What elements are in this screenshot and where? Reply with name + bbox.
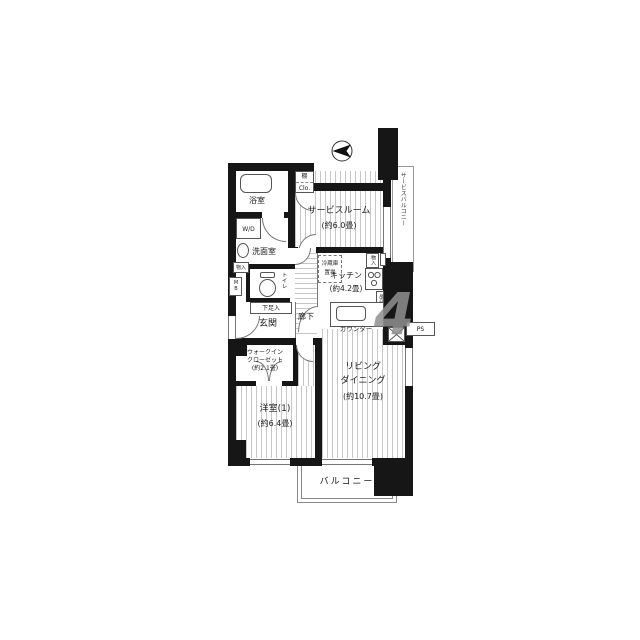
shoe-cabinet-label: 下足入	[251, 305, 291, 312]
bathtub-icon	[240, 174, 272, 193]
storage-box: 物入	[233, 262, 249, 273]
service-room-window	[383, 207, 391, 258]
wic-label-2: クローゼット	[238, 357, 292, 364]
shoe-cabinet: 下足入	[250, 302, 292, 314]
hallway-label: 廊下	[293, 312, 319, 322]
wall-balcony-right-block	[374, 458, 413, 496]
kitchen-sink-icon	[336, 306, 366, 321]
service-room-size: (約6.0畳)	[295, 221, 383, 231]
meter-box: MB	[229, 277, 242, 296]
wic-size: (約2.1畳)	[238, 365, 292, 372]
bathroom-door-arc	[262, 218, 286, 242]
meter-box-label: MB	[233, 280, 239, 292]
storage-label: 物入	[234, 265, 248, 271]
service-balcony-label: サービスバルコニー	[399, 172, 406, 226]
kitchen-storage: 物入	[366, 253, 379, 268]
kitchen-size: (約4.2畳)	[320, 284, 372, 293]
wall-entrance-bottom-a	[228, 338, 296, 345]
bathroom-label: 浴室	[240, 196, 274, 206]
washroom-label: 洗面室	[246, 247, 282, 257]
service-room-label: サービスルーム	[295, 206, 383, 217]
wall-service-right-upper	[383, 171, 391, 207]
wic-label-1: ウォークイン	[238, 349, 292, 356]
entrance-door-opening	[228, 316, 236, 339]
wall-room-divider	[315, 338, 322, 458]
toilet-tank-icon	[260, 272, 275, 278]
kitchen-side-shelf	[380, 253, 386, 266]
wall-top-mid	[306, 183, 383, 191]
wall-toilet-left	[246, 269, 250, 298]
wall-bottom-left-pillar	[228, 440, 246, 466]
washer-dryer-space: W/D	[236, 218, 261, 239]
entrance-label: 玄関	[250, 319, 286, 330]
watermark: 4	[374, 280, 414, 348]
wall-bottom-b	[290, 458, 322, 466]
floor-plan: サービスバルコニー 棚 Clo.	[0, 0, 640, 640]
wall-wic-bottom-b	[282, 381, 298, 386]
western-room-size: (約6.4畳)	[236, 419, 314, 429]
service-room-closet: 棚 Clo.	[295, 171, 314, 193]
washer-dryer-label: W/D	[237, 226, 260, 233]
western-room-label: 洋室(1)	[236, 404, 314, 415]
compass-icon	[331, 140, 353, 162]
living-dining-label-2: ダイニング	[322, 376, 404, 387]
living-dining-label-1: リビング	[322, 362, 404, 373]
kitchen-label: キッチン	[320, 271, 372, 281]
compass	[331, 140, 353, 162]
wall-living-right-lower	[405, 386, 413, 458]
wall-bath-right	[288, 171, 295, 248]
kitchen-storage-label: 物入	[370, 255, 376, 265]
western-room-window	[250, 459, 290, 465]
toilet-label: トイレ	[280, 272, 287, 289]
shelf-label: 棚	[296, 173, 313, 180]
toilet-bowl-icon	[259, 279, 276, 297]
washroom-door-gap	[288, 248, 295, 264]
closet-divider	[296, 182, 313, 183]
living-window-right	[405, 348, 413, 386]
service-balcony: サービスバルコニー	[392, 166, 414, 272]
living-window-bottom	[322, 459, 372, 465]
wall-top-left	[228, 163, 314, 171]
closet-abbr-label: Clo.	[296, 185, 313, 192]
wall-wic-bottom-a	[236, 381, 256, 386]
fridge-label-1: 冷蔵庫	[319, 261, 341, 268]
living-dining-size: (約10.7畳)	[322, 392, 404, 402]
